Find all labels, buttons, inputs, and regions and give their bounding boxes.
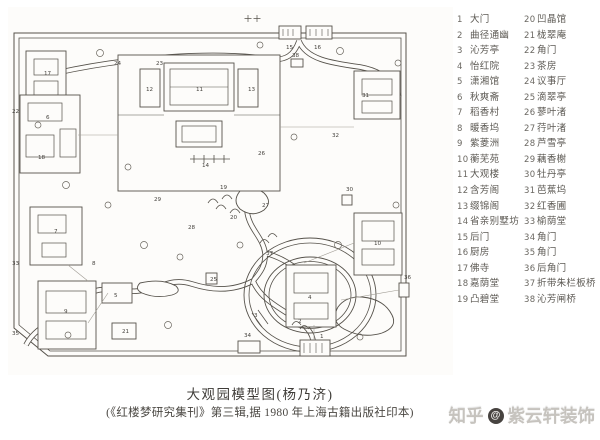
legend-item: 36后角门 (524, 262, 596, 278)
map-label: 26 (258, 151, 266, 157)
legend-item-name: 角门 (537, 233, 557, 243)
legend-item-name: 大观楼 (470, 170, 499, 180)
legend-item: 16厨房 (457, 246, 519, 262)
legend-item-number: 34 (524, 231, 537, 247)
map-label: 1 (320, 334, 324, 340)
garden-map-drawing: 1234567891011121314151617181920212223242… (8, 6, 453, 376)
legend-item: 37折带朱栏板桥 (524, 277, 596, 293)
legend-item: 8暖香坞 (457, 122, 519, 138)
map-label: 5 (114, 293, 118, 299)
legend-item-number: 20 (524, 13, 537, 29)
legend-item: 9紫菱洲 (457, 137, 519, 153)
legend-item-name: 凸碧堂 (470, 295, 499, 305)
legend-item-name: 折带朱栏板桥 (537, 279, 596, 289)
legend-item-name: 潇湘馆 (470, 77, 499, 87)
legend-item: 15后门 (457, 231, 519, 247)
legend-item: 11大观楼 (457, 168, 519, 184)
legend-item-number: 17 (457, 262, 470, 278)
legend-item: 12含芳阁 (457, 184, 519, 200)
legend-item-number: 26 (524, 106, 537, 122)
map-label: 14 (202, 163, 210, 169)
rear-corner-gate (399, 283, 409, 297)
map-label: 27 (262, 203, 270, 209)
legend-item: 29藕香榭 (524, 153, 596, 169)
map-label: 6 (46, 115, 50, 121)
legend-item: 27荇叶渚 (524, 122, 596, 138)
legend-item-number: 31 (524, 184, 537, 200)
legend-item-number: 14 (457, 215, 470, 231)
legend-item: 22角门 (524, 44, 596, 60)
map-label: 16 (314, 45, 322, 51)
legend-item-name: 角门 (537, 46, 557, 56)
corner-gate (238, 341, 260, 353)
legend-item-name: 沁芳闸桥 (537, 295, 576, 305)
legend-item-number: 19 (457, 293, 470, 309)
legend-item-name: 牡丹亭 (537, 170, 566, 180)
map-label: 38 (292, 53, 300, 59)
legend-item-number: 16 (457, 246, 470, 262)
legend-item: 20凹晶馆 (524, 13, 596, 29)
legend-item-name: 芭蕉坞 (537, 186, 566, 196)
legend-item-number: 18 (457, 277, 470, 293)
map-label: 37 (266, 251, 274, 257)
zhihu-avatar-icon: @ (488, 408, 504, 424)
map-label: 36 (404, 275, 412, 281)
legend-item-name: 芦雪亭 (537, 139, 566, 149)
map-label: 34 (244, 333, 252, 339)
map-label: 32 (332, 133, 339, 139)
map-label: 29 (154, 197, 162, 203)
legend-item: 2曲径通幽 (457, 29, 519, 45)
legend-item-name: 议事厅 (537, 77, 566, 87)
map-label: 19 (220, 185, 228, 191)
map-label: 9 (64, 309, 68, 315)
map-label: 18 (38, 155, 46, 161)
legend-item-number: 6 (457, 91, 470, 107)
map-label: 17 (44, 71, 52, 77)
legend-item: 1大门 (457, 13, 519, 29)
legend-item-name: 佛寺 (470, 264, 490, 274)
legend-item: 21栊翠庵 (524, 29, 596, 45)
legend-item-name: 沁芳亭 (470, 46, 499, 56)
legend-item-name: 省亲别墅坊 (470, 217, 519, 227)
watermark: 知乎 @ 紫云轩装饰 (449, 403, 596, 428)
back-gate-building (279, 26, 301, 39)
legend-item-name: 紫菱洲 (470, 139, 499, 149)
legend-item-name: 缀锦阁 (470, 202, 499, 212)
legend-item-number: 13 (457, 200, 470, 216)
legend-item: 25滴翠亭 (524, 91, 596, 107)
legend-item-name: 嘉荫堂 (470, 279, 499, 289)
legend-item-name: 荇叶渚 (537, 124, 566, 134)
legend-item: 32红香圃 (524, 200, 596, 216)
legend-item-number: 5 (457, 75, 470, 91)
legend-item-name: 榆荫堂 (537, 217, 566, 227)
legend-item-name: 稻香村 (470, 108, 499, 118)
map-label: 15 (286, 45, 294, 51)
legend-item-number: 38 (524, 293, 537, 309)
map-label: 30 (346, 187, 354, 193)
legend-item-number: 10 (457, 153, 470, 169)
legend-item: 26蓼叶渚 (524, 106, 596, 122)
legend-item-name: 红香圃 (537, 202, 566, 212)
map-label: 21 (122, 329, 130, 335)
mudan-pavilion (342, 195, 352, 205)
legend-item-name: 后角门 (537, 264, 566, 274)
legend-item: 19凸碧堂 (457, 293, 519, 309)
legend-item-name: 角门 (537, 248, 557, 258)
map-label: 22 (12, 109, 19, 115)
legend-item-number: 4 (457, 60, 470, 76)
legend-item-number: 25 (524, 91, 537, 107)
legend: 1大门 2曲径通幽 3沁芳亭 4怡红院 5潇湘馆 6秋爽斋 7稻香村 8暖香坞 … (457, 13, 596, 308)
legend-item-number: 27 (524, 122, 537, 138)
map-label: 31 (362, 93, 370, 99)
legend-item-name: 暖香坞 (470, 124, 499, 134)
legend-item-number: 7 (457, 106, 470, 122)
legend-item-number: 23 (524, 60, 537, 76)
legend-item-number: 8 (457, 122, 470, 138)
legend-item-number: 30 (524, 168, 537, 184)
legend-column-2: 20凹晶馆 21栊翠庵 22角门 23茶房 24议事厅 25滴翠亭 26蓼叶渚 … (524, 13, 596, 308)
legend-item-number: 33 (524, 215, 537, 231)
legend-item-name: 大门 (470, 15, 490, 25)
map-label: 25 (210, 277, 218, 283)
legend-item: 38沁芳闸桥 (524, 293, 596, 309)
legend-item-number: 36 (524, 262, 537, 278)
legend-item: 18嘉荫堂 (457, 277, 519, 293)
legend-item-name: 蘅芜苑 (470, 155, 499, 165)
main-gate (300, 340, 330, 356)
legend-item-number: 35 (524, 246, 537, 262)
map-label: 11 (196, 87, 204, 93)
legend-item-number: 21 (524, 29, 537, 45)
legend-item-name: 厨房 (470, 248, 490, 258)
legend-item-name: 怡红院 (470, 62, 499, 72)
legend-item-number: 2 (457, 29, 470, 45)
garden-map: 1234567891011121314151617181920212223242… (8, 6, 453, 376)
map-label: 10 (374, 241, 382, 247)
legend-item: 30牡丹亭 (524, 168, 596, 184)
legend-column-1: 1大门 2曲径通幽 3沁芳亭 4怡红院 5潇湘馆 6秋爽斋 7稻香村 8暖香坞 … (457, 13, 519, 308)
map-label: 28 (188, 225, 196, 231)
legend-item: 4怡红院 (457, 60, 519, 76)
map-label: 4 (308, 295, 312, 301)
legend-item-number: 11 (457, 168, 470, 184)
legend-item-number: 1 (457, 13, 470, 29)
legend-item-number: 37 (524, 277, 537, 293)
legend-item: 17佛寺 (457, 262, 519, 278)
legend-item-number: 29 (524, 153, 537, 169)
legend-item-name: 蓼叶渚 (537, 108, 566, 118)
legend-item-number: 15 (457, 231, 470, 247)
legend-item-name: 后门 (470, 233, 490, 243)
map-source: (《红楼梦研究集刊》第三辑,据 1980 年上海古籍出版社印本) (30, 404, 490, 420)
legend-item-number: 32 (524, 200, 537, 216)
legend-item: 24议事厅 (524, 75, 596, 91)
map-label: 33 (12, 261, 20, 267)
qinfang-sluice-bridge (291, 59, 303, 67)
legend-item: 5潇湘馆 (457, 75, 519, 91)
legend-item-number: 24 (524, 75, 537, 91)
legend-item-name: 含芳阁 (470, 186, 499, 196)
legend-item: 10蘅芜苑 (457, 153, 519, 169)
map-label: 23 (156, 61, 164, 67)
legend-item: 3沁芳亭 (457, 44, 519, 60)
legend-item-name: 凹晶馆 (537, 15, 566, 25)
legend-item-number: 3 (457, 44, 470, 60)
legend-item-name: 秋爽斋 (470, 93, 499, 103)
legend-item-number: 28 (524, 137, 537, 153)
map-label: 8 (92, 261, 96, 267)
legend-item: 34角门 (524, 231, 596, 247)
map-label: 24 (114, 61, 122, 67)
map-label: 20 (230, 215, 238, 221)
map-title: 大观园模型图(杨乃济) (55, 383, 465, 403)
map-label: 3 (254, 313, 258, 319)
legend-item-number: 9 (457, 137, 470, 153)
legend-item-name: 栊翠庵 (537, 31, 566, 41)
legend-item: 28芦雪亭 (524, 137, 596, 153)
legend-item-name: 藕香榭 (537, 155, 566, 165)
map-label: 2 (298, 319, 302, 325)
watermark-brand: 知乎 (449, 403, 484, 428)
legend-item: 23茶房 (524, 60, 596, 76)
legend-item: 13缀锦阁 (457, 200, 519, 216)
legend-item-name: 滴翠亭 (537, 93, 566, 103)
legend-item-name: 曲径通幽 (470, 31, 509, 41)
legend-item-number: 22 (524, 44, 537, 60)
legend-item-name: 茶房 (537, 62, 557, 72)
map-label: 7 (54, 229, 58, 235)
legend-item: 31芭蕉坞 (524, 184, 596, 200)
legend-item: 6秋爽斋 (457, 91, 519, 107)
map-label: 13 (248, 87, 256, 93)
legend-item: 7稻香村 (457, 106, 519, 122)
legend-item: 35角门 (524, 246, 596, 262)
map-label: 12 (146, 87, 153, 93)
legend-item: 33榆荫堂 (524, 215, 596, 231)
map-label: 35 (12, 331, 20, 337)
watermark-handle: 紫云轩装饰 (508, 403, 596, 428)
legend-item: 14省亲别墅坊 (457, 215, 519, 231)
legend-item-number: 12 (457, 184, 470, 200)
